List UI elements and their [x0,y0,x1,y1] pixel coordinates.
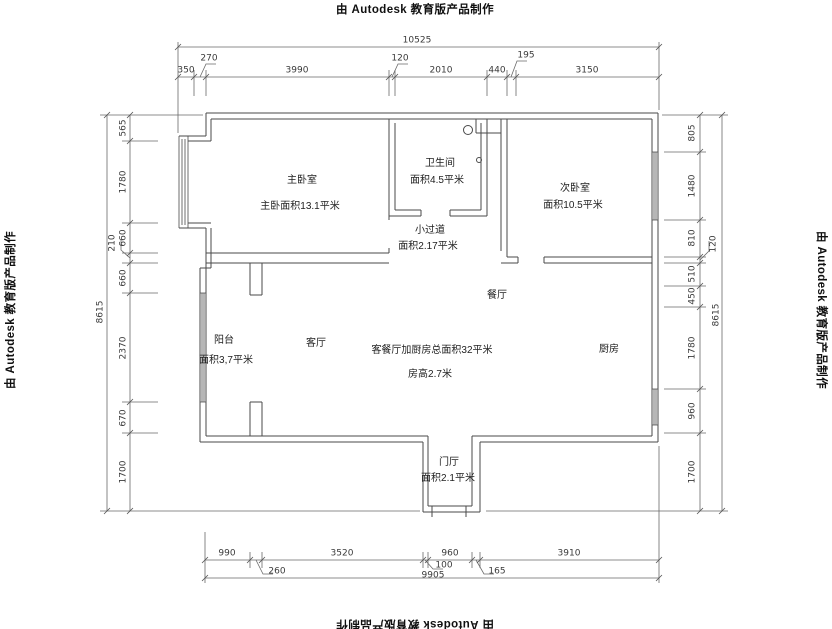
bay-window [179,136,188,228]
dim-top-seg: 195 [517,52,534,61]
room-label-entry-area: 面积2.1平米 [421,474,475,484]
autodesk-watermark-bottom: 由 Autodesk 教育版产品制作 [336,617,494,629]
room-label-dining: 餐厅 [487,291,507,301]
dim-top-overall: 10525 [403,37,432,46]
walls [179,113,658,517]
dim-left-seg: 2370 [120,337,129,360]
dim-left-overall: 8615 [97,301,106,324]
dim-left-seg: 565 [120,119,129,136]
dim-right-seg: 810 [689,229,698,246]
second-bedroom-window [652,152,658,220]
dim-bottom-seg: 260 [268,568,285,577]
autodesk-watermark-right: 由 Autodesk 教育版产品制作 [814,231,830,389]
room-label-kitchen: 厨房 [599,345,619,355]
room-label-summary-line1: 客餐厅加厨房总面积32平米 [371,346,492,356]
bathroom-fixture-circles [464,126,482,163]
room-label-corridor-name: 小过道 [415,226,445,236]
room-label-entry-name: 门厅 [439,458,459,468]
room-label-living: 客厅 [306,339,326,349]
dim-bottom-seg: 990 [218,550,235,559]
room-label-balcony-name: 阳台 [214,336,234,346]
dim-right-seg: 1780 [689,337,698,360]
dim-bottom-seg: 3520 [331,550,354,559]
autodesk-watermark-top: 由 Autodesk 教育版产品制作 [336,1,494,17]
dim-top-seg: 3150 [576,67,599,76]
room-label-summary-line2: 房高2.7米 [408,370,452,380]
dim-left-seg: 660 [120,269,129,286]
dim-right-seg: 1700 [689,461,698,484]
room-label-master-name: 主卧室 [287,176,317,186]
dim-right-seg: 805 [689,124,698,141]
bay-window-wall [179,136,211,228]
dim-top-seg: 350 [177,67,194,76]
room-label-bathroom-area: 面积4.5平米 [410,176,464,186]
room-label-bathroom-name: 卫生间 [425,159,455,169]
dim-left-seg: 670 [120,409,129,426]
room-label-second-bedroom-area: 面积10.5平米 [543,201,602,211]
dimension-ticks [104,44,725,581]
dim-right-seg: 450 [689,287,698,304]
dim-left-seg: 1700 [120,461,129,484]
dim-bottom-seg: 3910 [558,550,581,559]
dim-bottom-seg: 960 [441,550,458,559]
dim-top-seg: 440 [488,67,505,76]
dim-right-seg: 510 [689,265,698,282]
dim-top-seg: 270 [200,55,217,64]
dim-left-seg: 210 [109,234,118,251]
dim-right-seg: 960 [689,402,698,419]
dimension-leaders [121,61,709,574]
dim-right-overall: 8615 [713,304,722,327]
dim-right-seg: 120 [710,235,719,252]
dim-right-seg: 1480 [689,175,698,198]
floor-plan-drawing [0,0,832,629]
room-label-master-area: 主卧面积13.1平米 [260,202,339,212]
dim-left-seg: 660 [120,229,129,246]
dim-top-seg: 2010 [430,67,453,76]
fixture-circle-large [464,126,473,135]
extension-lines [122,70,706,568]
balcony-window [200,293,206,402]
room-label-second-bedroom-name: 次卧室 [560,184,590,194]
room-label-corridor-area: 面积2.17平米 [398,242,457,252]
room-label-balcony-area: 面积3,7平米 [199,356,253,366]
dim-bottom-seg: 165 [488,568,505,577]
dim-top-seg: 3990 [286,67,309,76]
dim-top-seg: 120 [391,55,408,64]
autodesk-watermark-left: 由 Autodesk 教育版产品制作 [2,231,18,389]
dimension-lines [100,42,728,583]
cad-floor-plan-canvas: 由 Autodesk 教育版产品制作 由 Autodesk 教育版产品制作 由 … [0,0,832,629]
dim-bottom-overall: 9905 [422,572,445,581]
dim-left-seg: 1780 [120,171,129,194]
dim-bottom-seg: 100 [435,562,452,571]
kitchen-window [652,389,658,425]
